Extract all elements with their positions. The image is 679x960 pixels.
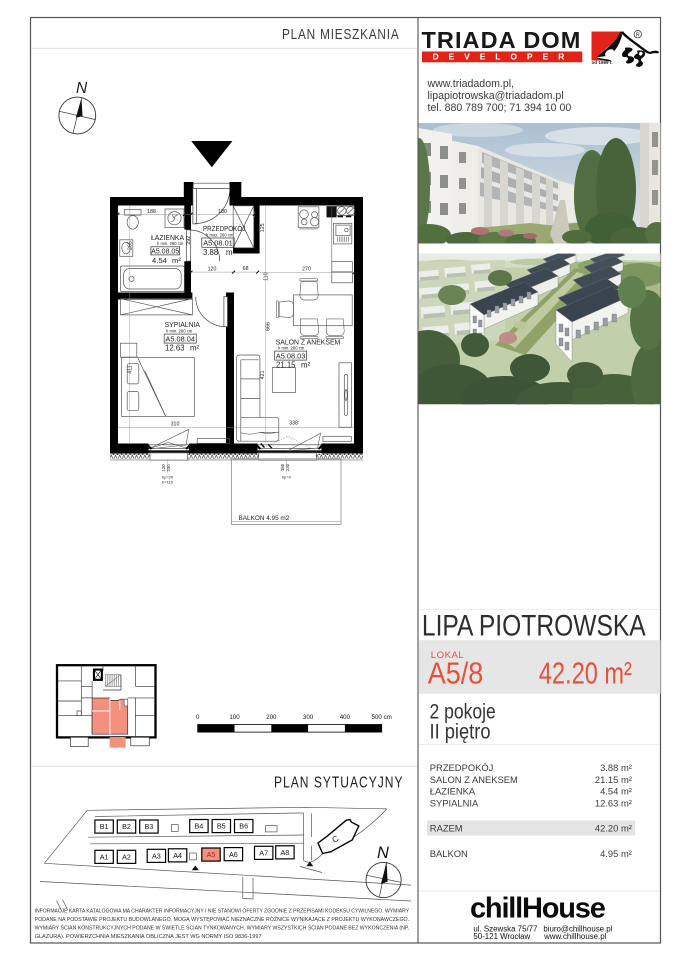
svg-text:SYPIALNIA: SYPIALNIA (430, 798, 479, 809)
svg-text:42.20 m²: 42.20 m² (539, 656, 632, 690)
svg-text:h min. 260 cm: h min. 260 cm (278, 346, 305, 351)
svg-text:A5.08.04: A5.08.04 (165, 334, 195, 343)
svg-text:A5: A5 (207, 850, 216, 859)
svg-text:od 1999 r.: od 1999 r. (592, 60, 613, 65)
svg-text:ŁAZIENKA: ŁAZIENKA (430, 786, 476, 797)
svg-text:h=110: h=110 (162, 480, 174, 485)
svg-text:68: 68 (243, 266, 249, 272)
svg-text:lipapiotrowska@triadadom.pl: lipapiotrowska@triadadom.pl (428, 90, 564, 102)
svg-text:A5.08.03: A5.08.03 (276, 352, 306, 361)
svg-text:3.88 m²: 3.88 m² (600, 762, 632, 773)
svg-text:h min. 260 cm: h min. 260 cm (166, 329, 193, 334)
svg-text:300: 300 (303, 714, 314, 721)
svg-text:A5/8: A5/8 (428, 656, 484, 690)
svg-text:A7: A7 (259, 849, 268, 858)
svg-text:B4: B4 (195, 822, 204, 831)
svg-text:chillHouse: chillHouse (470, 893, 606, 925)
svg-text:A8: A8 (281, 848, 290, 857)
svg-text:50-121 Wrocław: 50-121 Wrocław (473, 932, 530, 941)
svg-text:100: 100 (229, 714, 240, 721)
svg-text:400: 400 (340, 714, 351, 721)
svg-text:12.63 m²: 12.63 m² (595, 798, 632, 809)
svg-text:www.chillhouse.pl: www.chillhouse.pl (543, 932, 607, 941)
svg-text:125: 125 (260, 223, 266, 232)
svg-text:4.54: 4.54 (152, 256, 167, 265)
svg-text:BALKON 4.95 m2: BALKON 4.95 m2 (239, 515, 290, 522)
svg-text:B1: B1 (100, 822, 109, 831)
svg-text:h min. 260 cm: h min. 260 cm (157, 241, 184, 246)
svg-text:m²: m² (301, 361, 310, 370)
svg-text:LIPA PIOTROWSKA: LIPA PIOTROWSKA (422, 609, 646, 642)
svg-text:INFORMACJE KARTA KATALOGOWA MA: INFORMACJE KARTA KATALOGOWA MA CHARAKTER… (35, 909, 410, 915)
svg-text:B5: B5 (217, 822, 226, 831)
svg-text:TRIADA DOM: TRIADA DOM (422, 27, 582, 53)
svg-text:265: 265 (128, 241, 134, 250)
svg-text:B3: B3 (145, 822, 154, 831)
svg-text:B6: B6 (239, 822, 248, 831)
svg-text:PLAN SYTUACYJNY: PLAN SYTUACYJNY (274, 775, 404, 792)
svg-text:A6: A6 (229, 850, 238, 859)
svg-text:h max. 260 cm: h max. 260 cm (206, 233, 234, 238)
svg-text:110: 110 (264, 272, 270, 280)
svg-text:B2: B2 (122, 822, 131, 831)
svg-text:270: 270 (302, 266, 311, 272)
svg-text:A4: A4 (173, 851, 182, 860)
svg-text:A2: A2 (122, 853, 131, 862)
svg-text:120: 120 (208, 266, 217, 272)
svg-text:WYMIARY ŚCIAN KONSTRUKCYJNYCH: WYMIARY ŚCIAN KONSTRUKCYJNYCH PODANE W Ś… (35, 924, 410, 932)
svg-text:II piętro: II piętro (430, 720, 491, 743)
svg-text:310: 310 (171, 421, 180, 427)
svg-text:230: 230 (166, 464, 171, 472)
svg-text:666: 666 (266, 322, 272, 331)
svg-text:188: 188 (147, 209, 156, 215)
svg-text:RAZEM: RAZEM (430, 822, 463, 833)
svg-text:292: 292 (186, 236, 192, 245)
svg-text:200: 200 (266, 714, 277, 721)
svg-text:230: 230 (285, 463, 290, 471)
svg-text:R: R (636, 32, 640, 38)
svg-text:PLAN MIESZKANIA: PLAN MIESZKANIA (282, 27, 400, 43)
svg-text:SALON Z ANEKSEM: SALON Z ANEKSEM (430, 774, 518, 785)
svg-text:PODANE NA PODSTAWIE PROJEKTU B: PODANE NA PODSTAWIE PROJEKTU BUDOWLANEGO… (35, 916, 410, 923)
svg-text:500 cm: 500 cm (372, 714, 392, 721)
svg-text:0: 0 (196, 714, 200, 721)
svg-text:180: 180 (218, 209, 227, 215)
svg-text:A5.08.01: A5.08.01 (203, 238, 233, 247)
svg-text:m²: m² (226, 248, 235, 257)
svg-text:PRZEDPOKÓJ: PRZEDPOKÓJ (430, 762, 494, 773)
svg-text:12.63: 12.63 (165, 344, 185, 353)
svg-text:A1: A1 (100, 853, 109, 862)
svg-text:A5.08.05: A5.08.05 (151, 248, 179, 255)
svg-text:DEVELOPER: DEVELOPER (433, 52, 573, 62)
svg-text:BALKON: BALKON (430, 848, 468, 859)
svg-text:42.20 m²: 42.20 m² (595, 822, 632, 833)
svg-text:www.triadadom.pl,: www.triadadom.pl, (427, 78, 515, 90)
svg-text:m²: m² (172, 256, 181, 265)
svg-text:N: N (377, 844, 389, 862)
svg-text:21.15 m²: 21.15 m² (595, 774, 632, 785)
svg-text:21.15: 21.15 (276, 361, 296, 370)
svg-text:421: 421 (260, 371, 266, 380)
svg-text:338: 338 (289, 421, 298, 427)
svg-text:m²: m² (190, 344, 199, 353)
svg-text:411: 411 (128, 365, 134, 373)
svg-text:tel. 880 789 700; 71 394 10 00: tel. 880 789 700; 71 394 10 00 (428, 102, 572, 114)
svg-text:4.54 m²: 4.54 m² (600, 786, 632, 797)
svg-text:hp=0: hp=0 (282, 475, 292, 480)
svg-text:GLAZURA). POWIERZCHNIA MIESZKA: GLAZURA). POWIERZCHNIA MIESZKANIA OBLICZ… (35, 934, 262, 940)
svg-text:N: N (76, 80, 88, 97)
svg-text:A3: A3 (152, 852, 161, 861)
svg-text:4.95 m²: 4.95 m² (600, 848, 632, 859)
svg-text:3.88: 3.88 (203, 248, 218, 257)
